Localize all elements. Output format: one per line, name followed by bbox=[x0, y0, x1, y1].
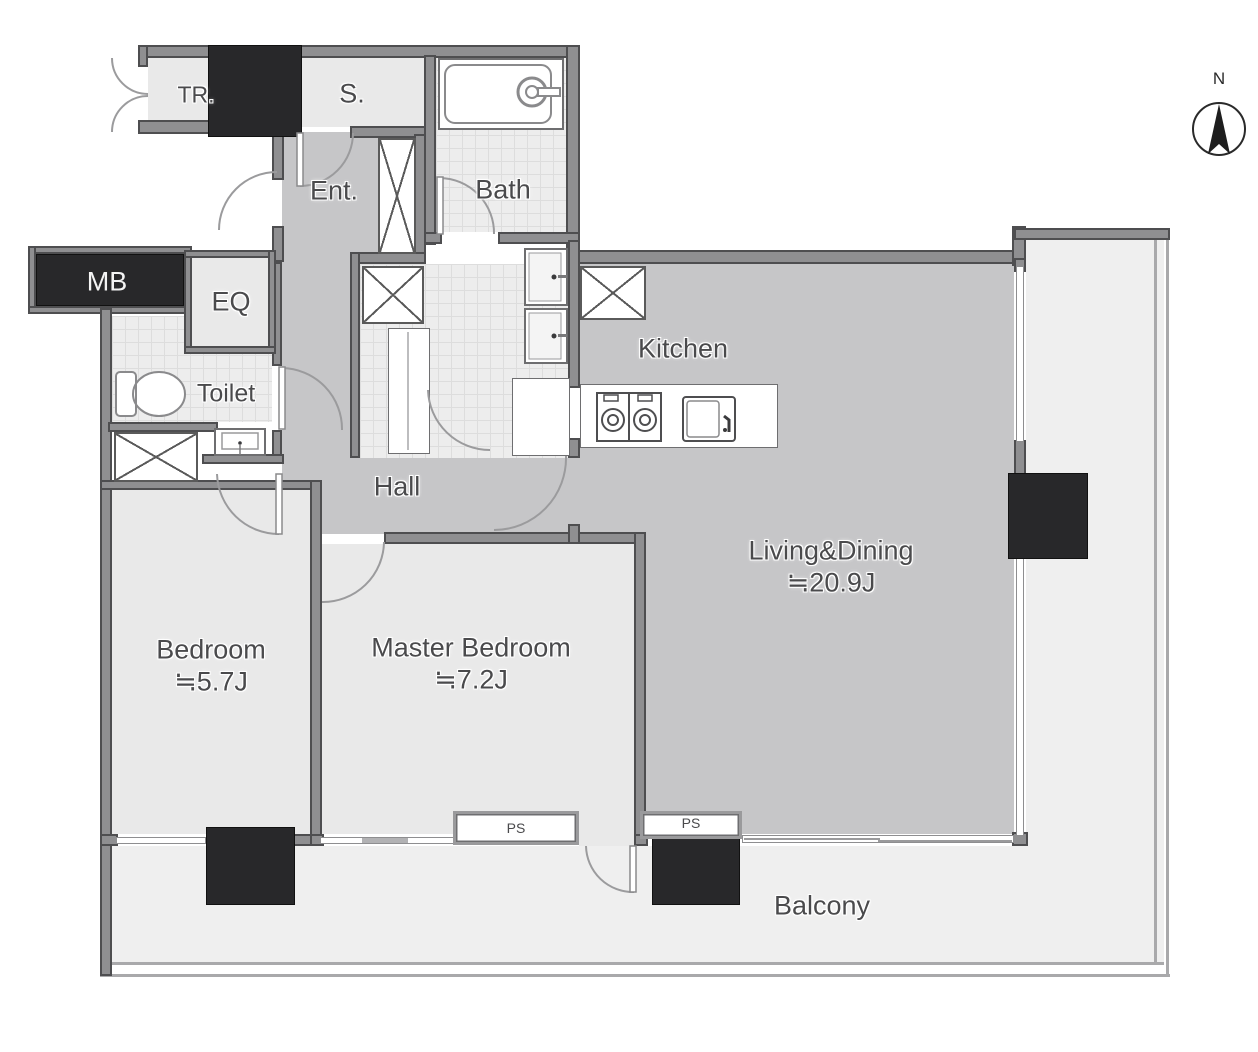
toilet-label: Toilet bbox=[197, 380, 255, 409]
window-frame-stub bbox=[362, 838, 408, 843]
trunk-room-label: TR. bbox=[177, 82, 214, 109]
window bbox=[116, 837, 206, 844]
wall bbox=[384, 532, 644, 544]
duct-shaft bbox=[114, 432, 198, 482]
pipe-space-label: PS bbox=[682, 815, 701, 831]
north-label: N bbox=[1213, 69, 1225, 89]
living-dining-label: Living&Dining bbox=[748, 536, 913, 567]
wall bbox=[138, 120, 216, 134]
wall bbox=[108, 422, 218, 432]
balcony-door-gap bbox=[579, 834, 635, 846]
entrance-label: Ent. bbox=[310, 176, 358, 207]
wall bbox=[184, 250, 276, 258]
wall bbox=[184, 250, 192, 354]
sliding-window-sash bbox=[744, 838, 880, 840]
wall bbox=[28, 246, 36, 314]
wall bbox=[634, 532, 646, 844]
toilet-fixture bbox=[114, 366, 188, 422]
corridor-floor bbox=[282, 252, 350, 458]
wall bbox=[268, 250, 276, 354]
wall bbox=[1014, 440, 1026, 476]
bathtub bbox=[438, 58, 564, 130]
balcony-edge-bottom-outer bbox=[100, 974, 1170, 977]
duct-shaft bbox=[378, 138, 416, 254]
wall bbox=[566, 45, 580, 263]
master-bedroom-area: ≒7.2J bbox=[434, 665, 508, 696]
balcony-edge-bottom-inner bbox=[104, 962, 1164, 965]
bedroom-area: ≒5.7J bbox=[174, 667, 248, 698]
bath-label: Bath bbox=[475, 175, 531, 206]
master-bedroom-label: Master Bedroom bbox=[371, 633, 571, 664]
wall bbox=[138, 45, 148, 67]
window bbox=[1016, 556, 1024, 836]
wall bbox=[1014, 228, 1170, 240]
storage-label: S. bbox=[339, 79, 365, 110]
door-arc bbox=[219, 172, 277, 230]
wall bbox=[568, 240, 580, 388]
wall bbox=[184, 346, 276, 354]
compass-icon bbox=[1190, 98, 1248, 160]
linen-closet bbox=[388, 328, 430, 454]
vanity-sink bbox=[524, 248, 568, 306]
hall-floor bbox=[282, 455, 568, 490]
duct-shaft bbox=[580, 266, 646, 320]
balcony-edge-right-inner bbox=[1154, 234, 1157, 965]
stove bbox=[596, 392, 662, 442]
window bbox=[1016, 266, 1024, 442]
wall bbox=[100, 308, 112, 976]
living-dining-area: ≒20.9J bbox=[787, 568, 876, 599]
wall bbox=[568, 524, 580, 544]
kitchen-door-gap bbox=[568, 455, 580, 528]
wall bbox=[424, 55, 436, 245]
meter-box-label: MB bbox=[87, 267, 128, 298]
wall bbox=[350, 252, 360, 458]
hand-basin bbox=[214, 428, 266, 456]
wall bbox=[138, 45, 580, 58]
equipment-label: EQ bbox=[211, 287, 250, 318]
duct-shaft bbox=[362, 266, 424, 324]
hall-floor-2 bbox=[318, 490, 568, 534]
vanity-sink bbox=[524, 308, 568, 364]
kitchen-label: Kitchen bbox=[638, 334, 728, 365]
structural-column bbox=[206, 827, 295, 905]
hall-label: Hall bbox=[374, 472, 421, 503]
structural-column bbox=[208, 45, 302, 137]
balcony-label: Balcony bbox=[774, 891, 870, 922]
kitchen-sink bbox=[682, 396, 736, 442]
wall bbox=[424, 232, 442, 244]
floor-plan: TR. S. Ent. Bath MB EQ Toilet Hall Kitch… bbox=[0, 0, 1258, 1052]
wall bbox=[310, 480, 322, 844]
sliding-window-sash bbox=[878, 840, 1012, 842]
wall bbox=[572, 250, 1024, 264]
bedroom-label: Bedroom bbox=[156, 635, 266, 666]
structural-column bbox=[1008, 473, 1088, 559]
closet-door-line bbox=[407, 332, 409, 450]
wall bbox=[28, 246, 192, 254]
balcony-edge-right-outer bbox=[1166, 230, 1169, 977]
laundry-space bbox=[512, 378, 570, 456]
pipe-space-label: PS bbox=[507, 820, 526, 836]
